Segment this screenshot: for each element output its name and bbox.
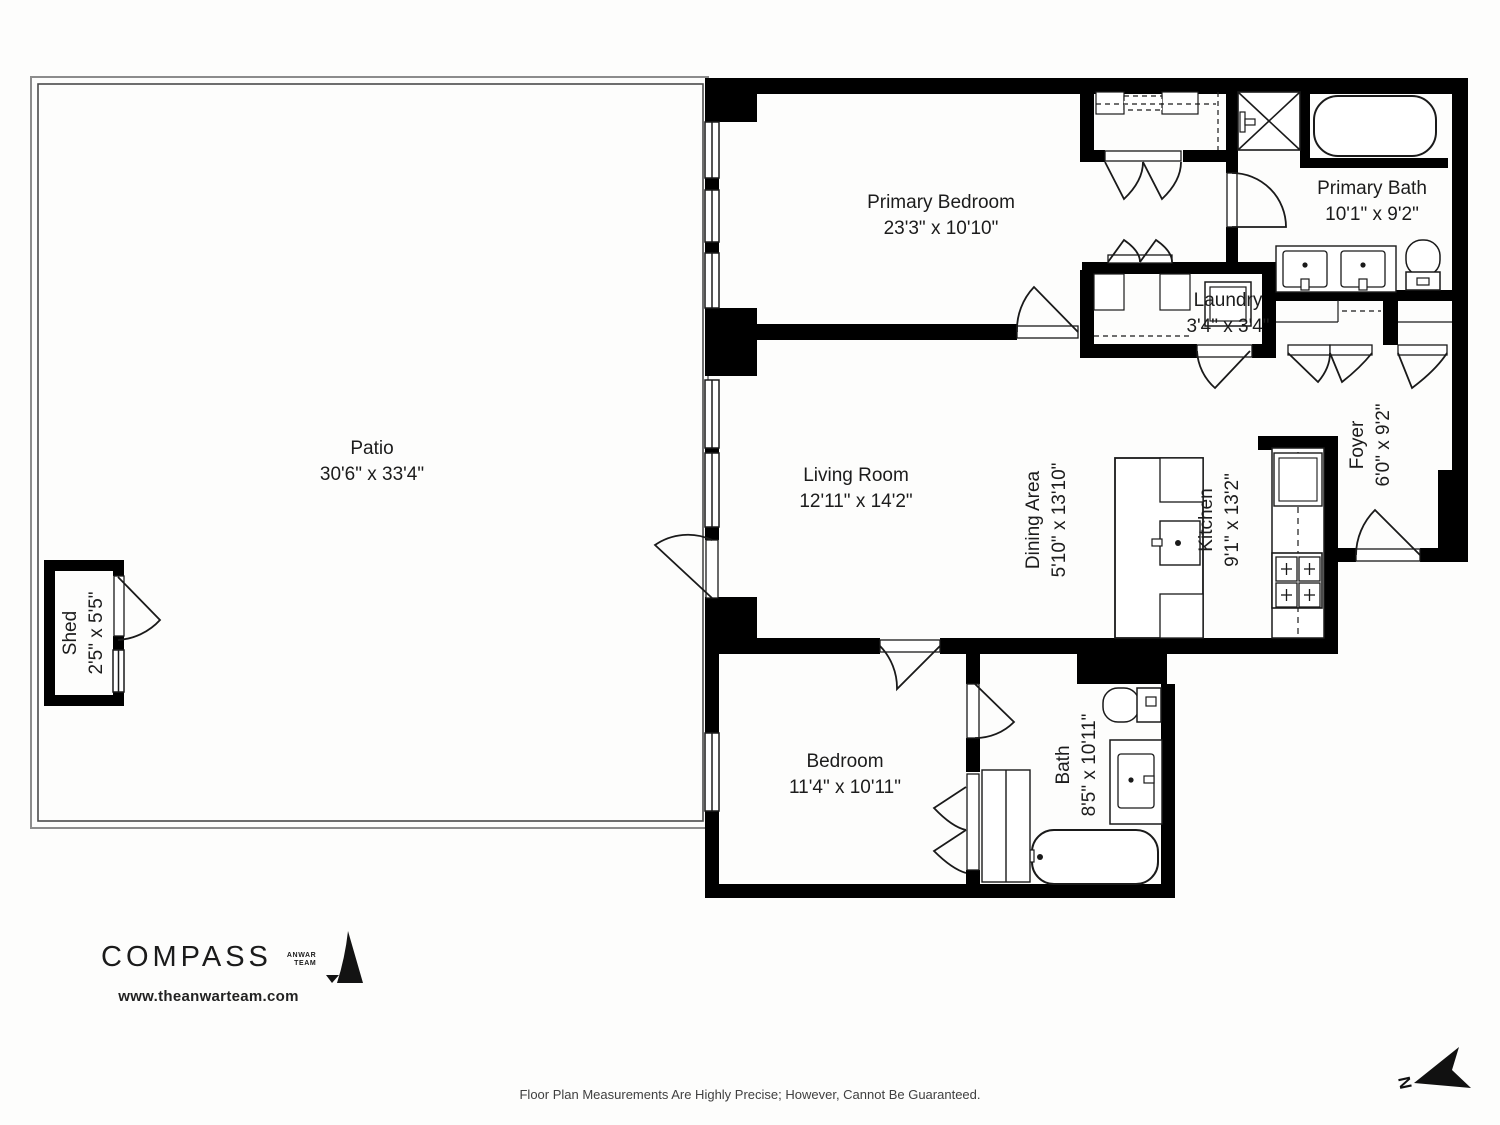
bath-closet — [982, 770, 1030, 882]
room-label-dining-area: Dining Area 5'10" x 13'10" — [1021, 463, 1073, 578]
door-primary-bedroom — [1017, 287, 1078, 332]
room-name: Primary Bath — [1317, 176, 1427, 202]
room-label-kitchen: Kitchen 9'1" x 13'2" — [1194, 473, 1246, 567]
room-dims: 2'5" x 5'5" — [84, 591, 110, 674]
room-name: Kitchen — [1194, 473, 1220, 567]
north-arrow — [1414, 1047, 1471, 1088]
door-bed-closet-a — [934, 787, 966, 830]
room-dims: 23'3" x 10'10" — [867, 216, 1015, 242]
foyer-closet-interior — [1276, 300, 1452, 322]
kitchen-island — [1115, 458, 1203, 638]
room-label-primary-bath: Primary Bath 10'1" x 9'2" — [1317, 176, 1427, 228]
room-name: Foyer — [1345, 403, 1371, 486]
room-label-bedroom: Bedroom 11'4" x 10'11" — [789, 749, 901, 801]
room-dims: 5'10" x 13'10" — [1047, 463, 1073, 578]
window-shed — [113, 650, 124, 692]
disclaimer-text: Floor Plan Measurements Are Highly Preci… — [0, 1087, 1500, 1102]
room-dims: 11'4" x 10'11" — [789, 775, 901, 801]
room-dims: 3'4" x 3'4" — [1186, 314, 1269, 340]
closet-b-interior — [1094, 274, 1190, 336]
room-dims: 8'5" x 10'11" — [1077, 714, 1103, 817]
room-name: Bath — [1051, 714, 1077, 817]
door-entry — [1356, 510, 1420, 555]
toilet-primary — [1406, 240, 1440, 290]
room-name: Dining Area — [1021, 463, 1047, 578]
stove — [1272, 553, 1322, 608]
door-foyer-closet-b — [1330, 353, 1372, 382]
room-name: Laundry — [1186, 288, 1269, 314]
anwar-team-mark: ANWAR TEAM — [287, 930, 364, 984]
kitchen-counter — [1272, 448, 1324, 638]
anwar-line2: TEAM — [294, 960, 316, 967]
room-label-living-room: Living Room 12'11" x 14'2" — [799, 463, 912, 515]
vanity-bath — [1110, 740, 1162, 824]
floor-plan-page: Patio 30'6" x 33'4" Shed 2'5" x 5'5" Pri… — [0, 0, 1500, 1125]
window-bedroom — [705, 733, 719, 811]
door-primary-bath — [1232, 173, 1286, 227]
room-label-patio: Patio 30'6" x 33'4" — [320, 436, 424, 488]
room-name: Primary Bedroom — [867, 190, 1015, 216]
toilet-bath — [1103, 688, 1161, 722]
room-name: Shed — [58, 591, 84, 674]
door-sills — [114, 151, 1447, 870]
window-primary-bedroom — [705, 122, 719, 308]
bathtub — [1024, 830, 1158, 884]
anwar-line1: ANWAR — [287, 952, 316, 959]
door-primary-closet-a — [1105, 162, 1143, 199]
room-label-laundry: Laundry 3'4" x 3'4" — [1186, 288, 1269, 340]
walls — [44, 78, 1468, 898]
branding-block: COMPASS ANWAR TEAM www.theanwarteam.com — [101, 930, 361, 1005]
room-label-primary-bedroom: Primary Bedroom 23'3" x 10'10" — [867, 190, 1015, 242]
bathtub-primary — [1314, 96, 1436, 156]
room-name: Patio — [320, 436, 424, 462]
closet-a-interior — [1096, 92, 1218, 150]
room-dims: 9'1" x 13'2" — [1220, 473, 1246, 567]
door-foyer-closet-a — [1288, 353, 1330, 382]
door-primary-closet-b — [1143, 162, 1181, 199]
window-living-room — [705, 380, 719, 527]
door-foyer-closet-c — [1398, 353, 1447, 388]
room-name: Bedroom — [789, 749, 901, 775]
room-label-shed: Shed 2'5" x 5'5" — [58, 591, 110, 674]
vanity-double — [1276, 246, 1396, 292]
room-name: Living Room — [799, 463, 912, 489]
anwar-a-icon — [318, 930, 364, 984]
room-dims: 6'0" x 9'2" — [1371, 403, 1397, 486]
door-bed-closet-b — [934, 830, 966, 873]
room-dims: 12'11" x 14'2" — [799, 489, 912, 515]
room-label-foyer: Foyer 6'0" x 9'2" — [1345, 403, 1397, 486]
room-dims: 30'6" x 33'4" — [320, 462, 424, 488]
compass-logo-text: COMPASS — [101, 941, 272, 974]
room-label-bath: Bath 8'5" x 10'11" — [1051, 714, 1103, 817]
room-dims: 10'1" x 9'2" — [1317, 202, 1427, 228]
website-link[interactable]: www.theanwarteam.com — [101, 988, 316, 1005]
shower — [1238, 92, 1300, 150]
door-bath — [975, 684, 1014, 738]
anwar-team-text: ANWAR TEAM — [287, 952, 316, 968]
